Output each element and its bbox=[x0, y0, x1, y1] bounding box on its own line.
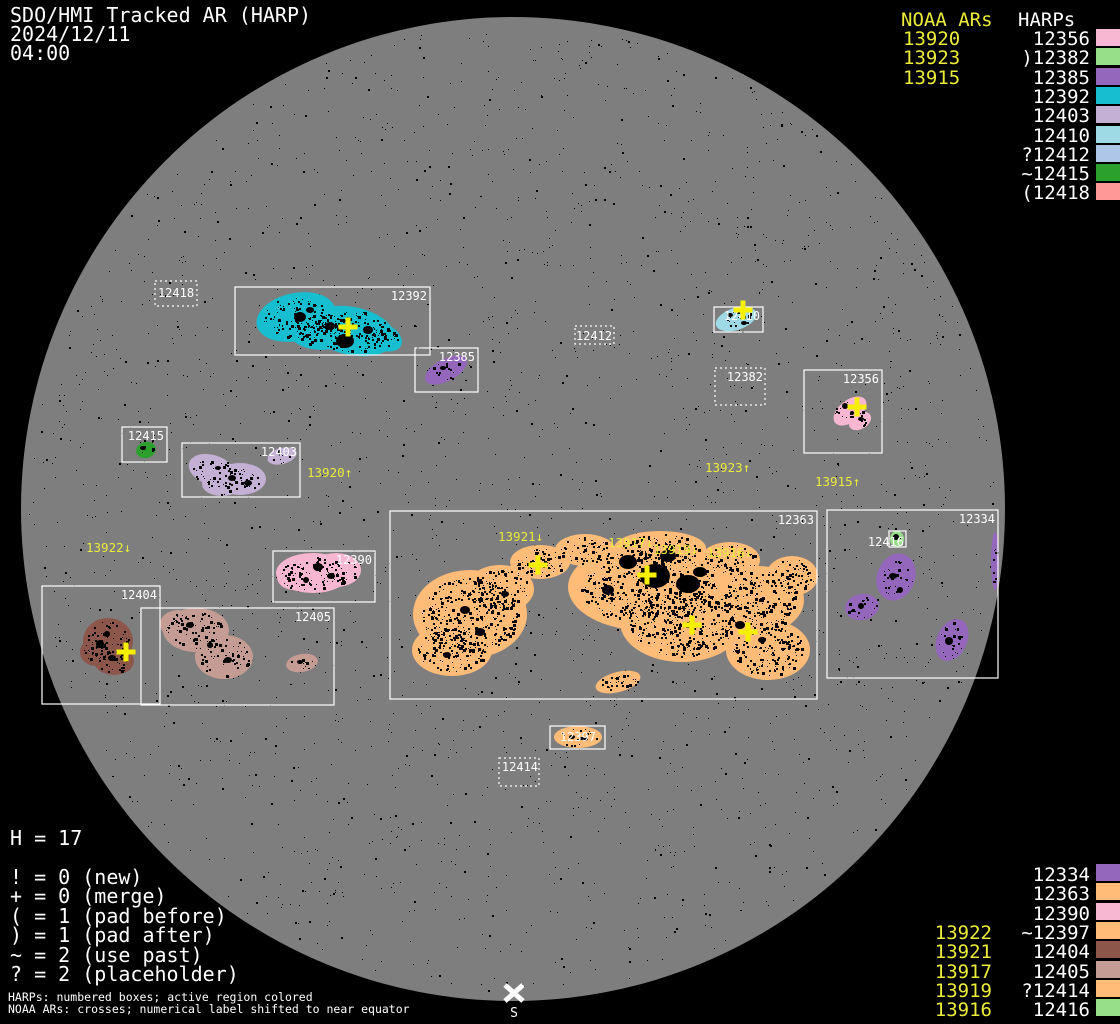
harp-color-swatch-12382 bbox=[1096, 48, 1120, 65]
cross-bar bbox=[645, 566, 650, 585]
cross-bar bbox=[536, 556, 541, 575]
sunspot bbox=[336, 334, 354, 348]
harp-box-label-12405: 12405 bbox=[295, 610, 331, 624]
harp-color-swatch-12356 bbox=[1096, 29, 1120, 46]
harp-color-swatch-12392 bbox=[1096, 87, 1120, 104]
noaa-shifted-label-13922: 13922↓ bbox=[86, 540, 131, 555]
sunspot bbox=[758, 637, 766, 643]
harp-color-swatch-12363 bbox=[1096, 883, 1120, 900]
cross-bar bbox=[855, 398, 860, 417]
time-label: 04:00 bbox=[10, 44, 70, 63]
sunspot bbox=[297, 660, 303, 664]
sunspot bbox=[306, 307, 314, 313]
sunspot bbox=[140, 446, 146, 450]
noaa-ar-item-south: 13921 bbox=[832, 943, 992, 962]
noaa-ar-item-south: 13916 bbox=[832, 1001, 992, 1020]
cross-bar bbox=[346, 318, 351, 337]
sunspot bbox=[325, 322, 335, 330]
sunspot bbox=[96, 640, 104, 648]
harp-color-swatch-12405 bbox=[1096, 961, 1120, 978]
sunspot bbox=[602, 585, 614, 595]
sunspot bbox=[460, 606, 470, 614]
sunspot bbox=[897, 587, 903, 593]
harp-box-label-12356: 12356 bbox=[843, 372, 879, 386]
harp-box-label-12385: 12385 bbox=[439, 350, 475, 364]
harp-box-label-12382: 12382 bbox=[727, 370, 763, 384]
harp-box-label-12404: 12404 bbox=[121, 588, 157, 602]
flag-legend-placeholder: ? = 2 (placeholder) bbox=[10, 965, 239, 984]
harp-list-item-south: 12363 bbox=[930, 885, 1090, 904]
noaa-shifted-label-13916: 13916↓ bbox=[707, 545, 752, 560]
noaa-shifted-label-13920: 13920↑ bbox=[307, 465, 352, 480]
noaa-shifted-label-13919: 13919↓ bbox=[653, 542, 698, 557]
harp-box-label-12415: 12415 bbox=[128, 429, 164, 443]
harp-color-swatch-12404 bbox=[1096, 941, 1120, 958]
sunspot bbox=[207, 642, 213, 648]
harp-list-item-north: 12403 bbox=[930, 107, 1090, 126]
active-region-blob bbox=[195, 635, 253, 679]
harp-tracking-plot: 1241812392123851241212410123821235612415… bbox=[0, 0, 1120, 1024]
sunspot bbox=[186, 622, 194, 628]
sunspot bbox=[104, 631, 110, 637]
sunspot bbox=[244, 480, 252, 486]
sunspot bbox=[501, 591, 509, 597]
sunspot bbox=[313, 563, 323, 571]
sunspot bbox=[889, 573, 897, 579]
harp-count: H = 17 bbox=[10, 829, 82, 848]
harp-box-label-12390: 12390 bbox=[336, 553, 372, 567]
harp-box-label-12418: 12418 bbox=[158, 286, 194, 300]
south-pole-label: S bbox=[510, 1006, 518, 1021]
harp-color-swatch-12414 bbox=[1096, 980, 1120, 997]
harp-box-label-12412: 12412 bbox=[576, 329, 612, 343]
sunspot bbox=[303, 577, 309, 583]
sunspot bbox=[858, 603, 864, 609]
harp-color-swatch-12397 bbox=[1096, 922, 1120, 939]
harp-box-label-12363: 12363 bbox=[778, 513, 814, 527]
sunspot bbox=[842, 403, 848, 409]
solar-disk bbox=[21, 17, 1005, 1001]
sunspot bbox=[363, 326, 373, 334]
active-region-blob bbox=[277, 564, 311, 590]
sunspot bbox=[215, 466, 221, 470]
harp-box-label-12403: 12403 bbox=[261, 445, 297, 459]
cross-bar bbox=[690, 616, 695, 635]
harp-color-swatch-12403 bbox=[1096, 106, 1120, 123]
sunspot bbox=[440, 366, 446, 370]
harp-color-swatch-12416 bbox=[1096, 999, 1120, 1016]
sunspot bbox=[693, 567, 707, 577]
sunspot bbox=[224, 657, 232, 663]
sunspot bbox=[327, 573, 335, 579]
harp-color-swatch-12385 bbox=[1096, 68, 1120, 85]
noaa-shifted-label-13923: 13923↑ bbox=[705, 460, 750, 475]
sunspot bbox=[228, 475, 236, 481]
harp-color-swatch-12334 bbox=[1096, 864, 1120, 881]
harp-box-label-12397: 12397 bbox=[560, 730, 596, 744]
harp-color-swatch-12418 bbox=[1096, 183, 1120, 200]
sunspot bbox=[475, 628, 485, 636]
cross-bar bbox=[746, 623, 751, 642]
noaa-shifted-label-13917: 13917↓ bbox=[608, 535, 653, 550]
sunspot bbox=[676, 575, 700, 593]
sunspot bbox=[735, 621, 745, 629]
sunspot bbox=[443, 652, 451, 658]
harp-box-label-12416: 12416 bbox=[868, 535, 904, 549]
sunspot bbox=[619, 555, 637, 569]
harp-box-label-12414: 12414 bbox=[502, 760, 538, 774]
sunspot bbox=[858, 417, 864, 421]
footer-noaa-caption: NOAA ARs: crosses; numerical label shift… bbox=[8, 1003, 410, 1015]
harp-box-label-12334: 12334 bbox=[959, 512, 995, 526]
harp-color-swatch-12412 bbox=[1096, 145, 1120, 162]
sunspot bbox=[945, 637, 953, 645]
harp-color-swatch-12390 bbox=[1096, 903, 1120, 920]
harp-color-swatch-12410 bbox=[1096, 126, 1120, 143]
sunspot bbox=[294, 312, 306, 322]
sunspot bbox=[108, 655, 116, 661]
cross-bar bbox=[124, 643, 129, 662]
harp-list-item-north: )12382 bbox=[930, 49, 1090, 68]
harp-box-label-12392: 12392 bbox=[391, 289, 427, 303]
sunspot bbox=[850, 411, 854, 415]
noaa-shifted-label-13915: 13915↑ bbox=[815, 474, 860, 489]
harp-list-item-north: (12418 bbox=[930, 184, 1090, 203]
cross-bar bbox=[741, 301, 746, 320]
noaa-shifted-label-13921: 13921↓ bbox=[498, 529, 543, 544]
harp-color-swatch-12415 bbox=[1096, 164, 1120, 181]
